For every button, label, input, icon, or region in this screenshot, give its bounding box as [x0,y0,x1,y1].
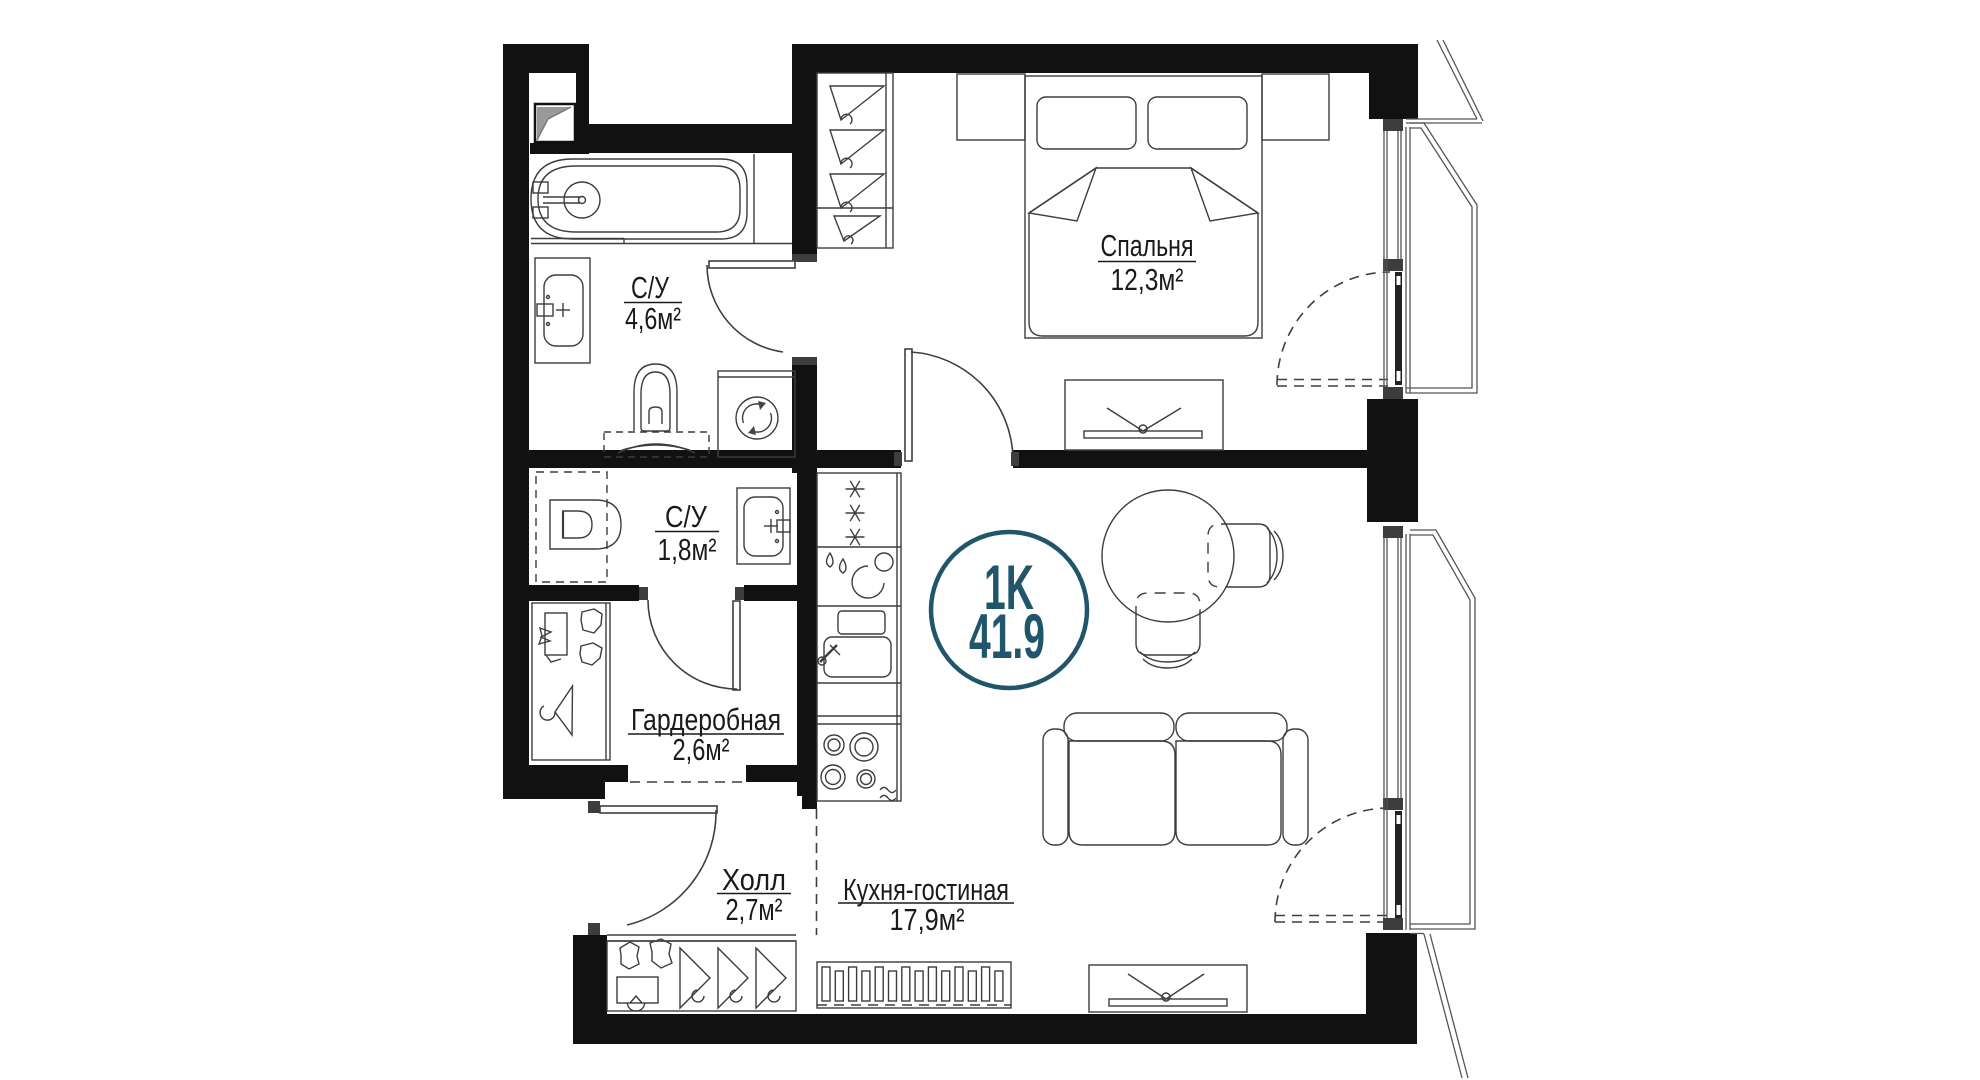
svg-text:Спальня: Спальня [1101,228,1194,263]
svg-text:1,8м²: 1,8м² [658,532,717,567]
svg-text:2,7м²: 2,7м² [726,892,783,927]
svg-text:С/У: С/У [665,499,707,534]
svg-text:12,3м²: 12,3м² [1111,262,1184,297]
svg-text:2,6м²: 2,6м² [673,732,730,767]
svg-text:С/У: С/У [631,270,669,305]
svg-text:41.9: 41.9 [969,603,1045,673]
svg-text:17,9м²: 17,9м² [890,902,965,937]
svg-text:4,6м²: 4,6м² [625,301,681,336]
